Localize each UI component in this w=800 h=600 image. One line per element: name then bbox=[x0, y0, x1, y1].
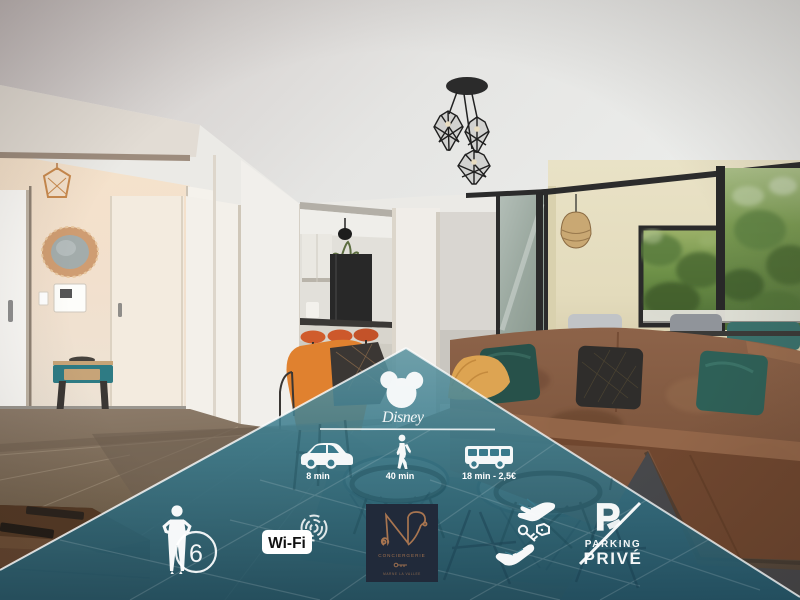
svg-text:18 min - 2,5€: 18 min - 2,5€ bbox=[462, 471, 516, 481]
svg-text:Disney: Disney bbox=[381, 409, 425, 426]
svg-text:CONCIERGERIE: CONCIERGERIE bbox=[378, 553, 425, 558]
svg-text:40 min: 40 min bbox=[386, 471, 415, 481]
svg-text:6: 6 bbox=[189, 540, 203, 568]
svg-text:MARNE LA VALLEE: MARNE LA VALLEE bbox=[383, 572, 421, 576]
svg-text:8 min: 8 min bbox=[306, 471, 330, 481]
svg-text:Wi-Fi: Wi-Fi bbox=[268, 535, 306, 552]
svg-text:P: P bbox=[595, 497, 620, 539]
svg-text:PRIVÉ: PRIVÉ bbox=[583, 549, 642, 568]
